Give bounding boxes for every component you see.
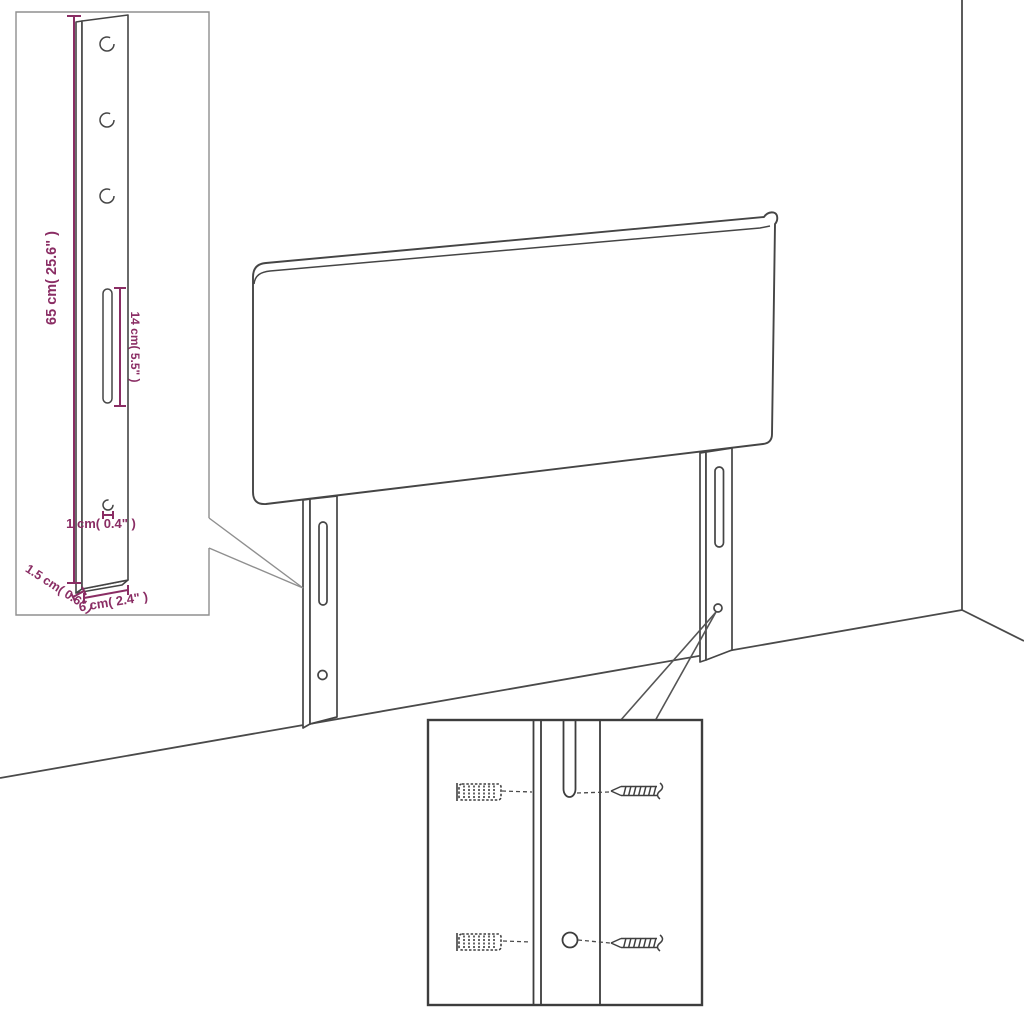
leg-detail-callout [209, 518, 303, 588]
leg-callout-line-1 [209, 518, 303, 588]
hardware-box-border [428, 720, 702, 1005]
diagram-canvas: 65 cm( 25.6" ) 14 cm( 5.5" ) 1 cm( 0.4" … [0, 0, 1024, 1024]
right-leg-front-face [706, 448, 732, 660]
hole-diameter-label: 1 cm( 0.4" ) [66, 516, 136, 531]
detail-leg-front-face [82, 15, 128, 589]
leg-callout-line-2 [209, 548, 303, 588]
headboard-panel [253, 212, 777, 504]
detail-leg-side-face [76, 21, 82, 593]
left-leg-front-face [310, 496, 337, 724]
left-leg-side-face [303, 499, 310, 728]
hardware-detail-box [428, 720, 702, 1005]
right-leg [700, 448, 732, 662]
leg-height-label: 65 cm( 25.6" ) [44, 231, 60, 325]
floor-line-right [962, 610, 1024, 641]
headboard-panel-outline [253, 212, 777, 504]
hardware-callout-line-2 [655, 612, 716, 721]
left-leg [303, 496, 337, 728]
headboard-dimension-diagram: 65 cm( 25.6" ) 14 cm( 5.5" ) 1 cm( 0.4" … [0, 0, 1024, 1024]
slot-length-label: 14 cm( 5.5" ) [128, 311, 142, 382]
